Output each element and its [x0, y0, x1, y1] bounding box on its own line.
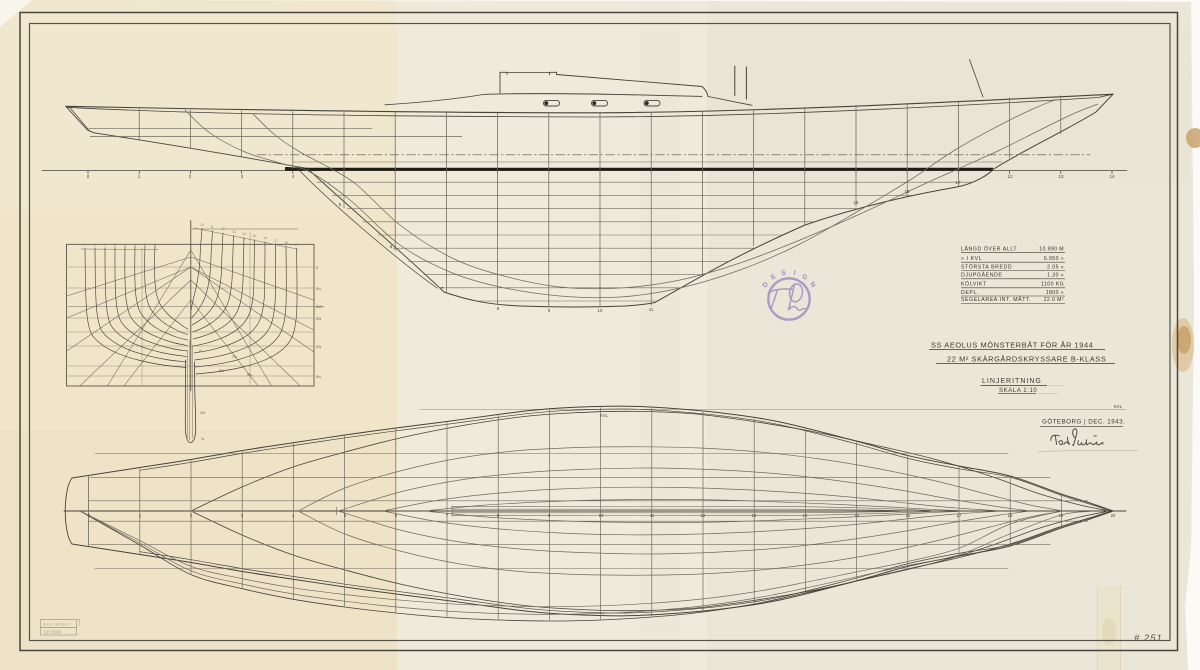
svg-text:15: 15 [855, 513, 860, 518]
svg-text:# 251: # 251 [1134, 633, 1163, 644]
svg-text:1: 1 [138, 174, 141, 179]
svg-text:4: 4 [292, 174, 295, 179]
svg-text:16: 16 [905, 189, 910, 194]
svg-text:GÖTEBORG | DEC. 1943.: GÖTEBORG | DEC. 1943. [1042, 419, 1125, 426]
svg-text:SEGELAREA INT. MÄTT.: SEGELAREA INT. MÄTT. [961, 296, 1031, 303]
svg-text:2: 2 [189, 174, 192, 179]
svg-text:SJÖH. MUSEET: SJÖH. MUSEET [43, 623, 70, 627]
svg-text:1100 KG: 1100 KG [1041, 282, 1064, 288]
svg-text:DJUPGÅENDE: DJUPGÅENDE [961, 272, 1002, 279]
svg-text:KVL: KVL [1114, 404, 1123, 409]
svg-text:3: 3 [144, 243, 146, 247]
svg-text:19: 19 [294, 243, 298, 247]
svg-text:11: 11 [650, 513, 655, 518]
svg-text:15: 15 [854, 200, 859, 205]
svg-text:12: 12 [701, 513, 706, 518]
svg-text:1.30 »: 1.30 » [1047, 273, 1064, 279]
svg-text:2½: 2½ [316, 317, 321, 321]
svg-text:3: 3 [241, 174, 244, 179]
svg-text:12: 12 [1007, 174, 1013, 179]
svg-text:22.0 M²: 22.0 M² [1044, 297, 1064, 303]
svg-text:18: 18 [1008, 513, 1013, 518]
svg-text:14: 14 [803, 513, 808, 518]
svg-text:SE 6568: SE 6568 [44, 630, 62, 635]
svg-text:10: 10 [598, 308, 603, 313]
svg-text:2: 2 [154, 243, 156, 247]
svg-text:11: 11 [210, 225, 214, 229]
svg-text:7: 7 [104, 243, 106, 247]
svg-text:1800 »: 1800 » [1046, 290, 1064, 296]
svg-text:19: 19 [1059, 513, 1064, 518]
svg-text:16: 16 [263, 236, 267, 240]
svg-text:6: 6 [114, 243, 116, 247]
svg-text:6.950 »: 6.950 » [1044, 256, 1064, 262]
svg-text:18: 18 [284, 241, 288, 245]
svg-text:17: 17 [274, 239, 278, 243]
svg-text:8: 8 [94, 243, 96, 247]
svg-text:17: 17 [956, 180, 961, 185]
svg-text:9: 9 [84, 243, 86, 247]
svg-text:SS AEOLUS MÖNSTERBÅT FÖR ÅR 1: SS AEOLUS MÖNSTERBÅT FÖR ÅR 1944 [931, 341, 1093, 350]
svg-text:STÖRSTA BREDD: STÖRSTA BREDD [961, 263, 1012, 270]
svg-text:0: 0 [87, 174, 90, 179]
svg-text:KVL: KVL [316, 305, 323, 309]
svg-text:13: 13 [752, 513, 757, 518]
svg-text:22 M² SKÄRGÅRDSKRYSSARE B-KLA: 22 M² SKÄRGÅRDSKRYSSARE B-KLASS [947, 354, 1106, 363]
svg-text:10: 10 [200, 223, 204, 227]
svg-text:2.05 »: 2.05 » [1047, 264, 1064, 270]
svg-text:14: 14 [1109, 174, 1115, 179]
svg-text:12: 12 [221, 227, 225, 231]
svg-text:SKALA 1:10: SKALA 1:10 [999, 388, 1037, 394]
svg-text:10: 10 [599, 513, 604, 518]
svg-text:DEPL.: DEPL. [961, 290, 979, 296]
svg-text:2: 2 [316, 266, 318, 270]
svg-text:LINJERITNING: LINJERITNING [982, 378, 1042, 385]
svg-text:16: 16 [906, 513, 911, 518]
svg-text:4: 4 [134, 243, 136, 247]
svg-text:13: 13 [1058, 174, 1064, 179]
svg-text:10.990 M: 10.990 M [1039, 247, 1064, 253]
svg-text:11: 11 [649, 307, 654, 312]
svg-text:LÄNGD ÖVER ALLT: LÄNGD ÖVER ALLT [961, 246, 1017, 253]
svg-text:17: 17 [957, 513, 962, 518]
svg-text:» I KVL: » I KVL [961, 256, 982, 262]
svg-text:1½: 1½ [200, 411, 205, 415]
svg-text:5: 5 [124, 243, 126, 247]
svg-text:14: 14 [242, 232, 246, 236]
svg-text:KÖLVIKT: KÖLVIKT [961, 281, 987, 288]
svg-text:13: 13 [232, 230, 236, 234]
svg-text:20: 20 [1111, 513, 1116, 518]
svg-text:KVL: KVL [600, 413, 609, 418]
svg-text:2: 2 [199, 349, 201, 353]
svg-text:15: 15 [252, 234, 256, 238]
